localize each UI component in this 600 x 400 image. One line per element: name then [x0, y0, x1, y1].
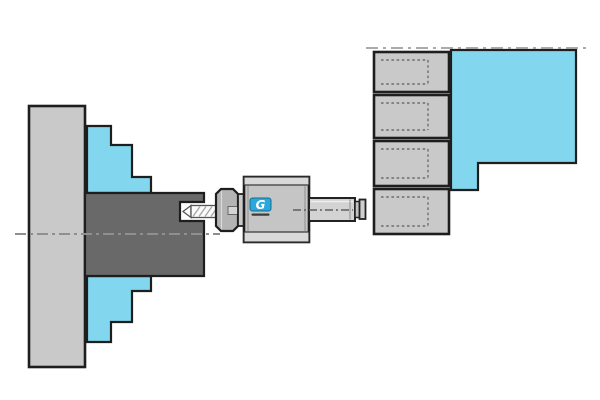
brand-logo-letter: G: [256, 198, 266, 212]
toolholder-bottom-cap: [244, 232, 309, 242]
turret-station-1: [374, 52, 449, 92]
shank-end-cap: [360, 200, 366, 220]
chuck-jaw-top: [87, 126, 151, 193]
drill-bit: [183, 206, 217, 218]
spindle-assembly: [29, 106, 204, 367]
chuck-jaw-bottom: [87, 276, 151, 342]
drill-body: [191, 206, 217, 218]
lathe-drilling-diagram: G: [0, 0, 600, 400]
chuck-backplate: [29, 106, 85, 367]
turret: [374, 50, 576, 234]
collet-chuck: [216, 189, 244, 231]
turret-station-2: [374, 95, 449, 138]
collet-nut-slot: [228, 207, 238, 215]
turret-station-3: [374, 141, 449, 186]
brand-logo-wordmark-smudge: [252, 214, 270, 216]
turret-body-fixture: [451, 50, 576, 190]
drill-tip: [183, 206, 191, 218]
toolholder-top-cap: [244, 177, 309, 185]
turret-station-4: [374, 189, 449, 234]
simulation-canvas: G: [0, 0, 600, 400]
